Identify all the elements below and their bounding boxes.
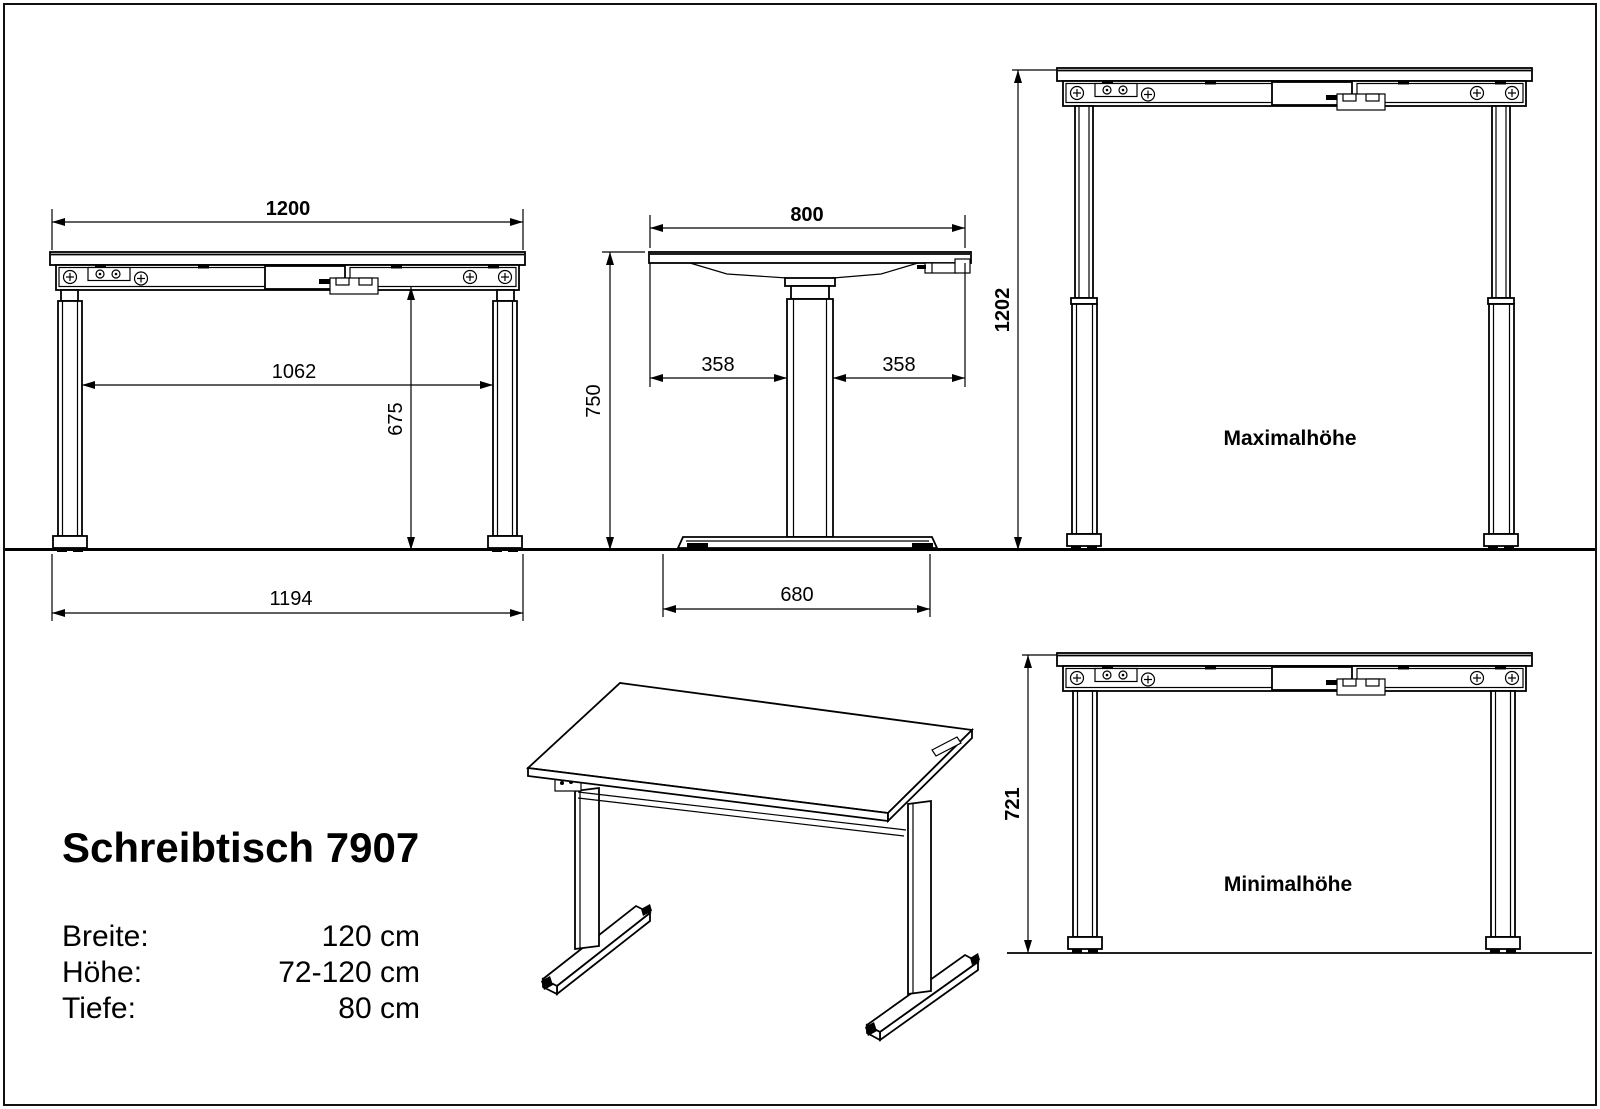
dimension-front-overhang: 358 [650, 263, 787, 387]
dimension-height-750: 750 [583, 252, 645, 550]
left-leg-retracted [1068, 691, 1102, 953]
dimension-foot-depth: 680 [663, 554, 930, 617]
dimension-min-height: 721 [1002, 655, 1057, 953]
caption-minimalhoehe: Minimalhöhe [1224, 873, 1352, 896]
spec-label-tiefe: Tiefe: [62, 991, 136, 1027]
spec-value-breite: 120 cm [322, 919, 420, 955]
front-view-min-height: 721 Minimalhöhe [995, 640, 1597, 970]
dim-label-1200: 1200 [266, 198, 311, 220]
front-view-max-height: 1202 Maximalhöhe [995, 55, 1597, 555]
spec-value-tiefe: 80 cm [338, 991, 420, 1027]
desk-top-side [649, 252, 971, 278]
right-leg-3d [908, 801, 931, 994]
column-side [785, 278, 835, 537]
dim-label-1194: 1194 [269, 588, 312, 610]
product-specs: Breite: 120 cm Höhe: 72-120 cm Tiefe: 80… [62, 919, 420, 1027]
dim-label-721: 721 [1002, 787, 1024, 820]
dim-label-750: 750 [583, 384, 605, 417]
dim-label-358-front: 358 [701, 354, 734, 376]
dim-label-800: 800 [790, 204, 823, 226]
side-view: 800 [565, 195, 995, 635]
product-title: Schreibtisch 7907 [62, 824, 419, 872]
dim-label-1202: 1202 [992, 288, 1014, 333]
spec-label-breite: Breite: [62, 919, 149, 955]
spec-label-hoehe: Höhe: [62, 955, 142, 991]
perspective-view [495, 645, 995, 1065]
right-leg-extended [1484, 106, 1518, 550]
caption-maximalhoehe: Maximalhöhe [1223, 427, 1356, 450]
dimension-inner-width: 1062 [82, 361, 493, 389]
dimension-max-height: 1202 [992, 70, 1057, 550]
spec-value-hoehe: 72-120 cm [278, 955, 420, 991]
front-view-standard: 1200 1062 675 [36, 195, 546, 635]
dimension-top-depth: 800 [650, 204, 965, 248]
dimension-underframe-height: 675 [385, 287, 415, 550]
right-leg [488, 290, 522, 552]
technical-drawing-sheet: 1200 1062 675 [0, 0, 1600, 1109]
dimension-feet-width: 1194 [52, 554, 523, 621]
right-leg-retracted [1486, 691, 1520, 953]
left-leg-extended [1067, 106, 1101, 550]
dim-label-675: 675 [385, 402, 407, 435]
spec-row-breite: Breite: 120 cm [62, 919, 420, 955]
dimension-back-overhang: 358 [833, 263, 965, 387]
dimension-top-width: 1200 [52, 198, 523, 250]
dim-label-358-back: 358 [882, 354, 915, 376]
spec-row-hoehe: Höhe: 72-120 cm [62, 955, 420, 991]
foot-side [678, 537, 937, 548]
left-leg-3d [555, 775, 599, 949]
spec-row-tiefe: Tiefe: 80 cm [62, 991, 420, 1027]
dim-label-680: 680 [780, 584, 813, 606]
left-leg [53, 290, 87, 552]
dim-label-1062: 1062 [272, 361, 317, 383]
